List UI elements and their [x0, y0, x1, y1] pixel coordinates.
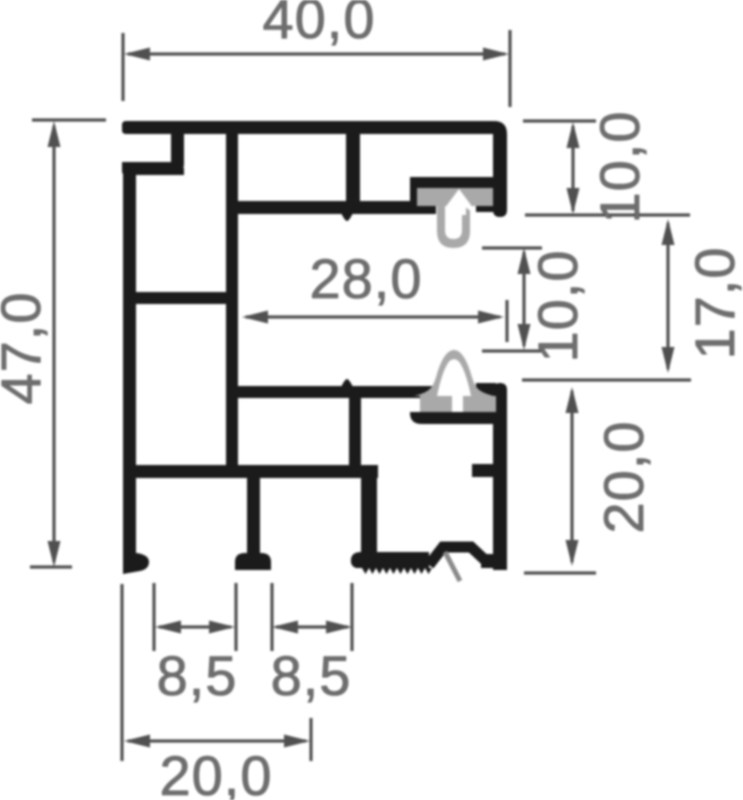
svg-text:8,5: 8,5: [157, 644, 238, 707]
svg-text:10,0: 10,0: [588, 111, 651, 224]
svg-text:40,0: 40,0: [263, 0, 376, 50]
svg-text:28,0: 28,0: [310, 247, 423, 310]
svg-text:47,0: 47,0: [0, 292, 52, 405]
svg-text:10,0: 10,0: [526, 250, 589, 363]
svg-text:20,0: 20,0: [592, 421, 655, 534]
svg-text:20,0: 20,0: [160, 744, 273, 800]
svg-text:17,0: 17,0: [683, 247, 743, 360]
svg-text:8,5: 8,5: [271, 644, 352, 707]
